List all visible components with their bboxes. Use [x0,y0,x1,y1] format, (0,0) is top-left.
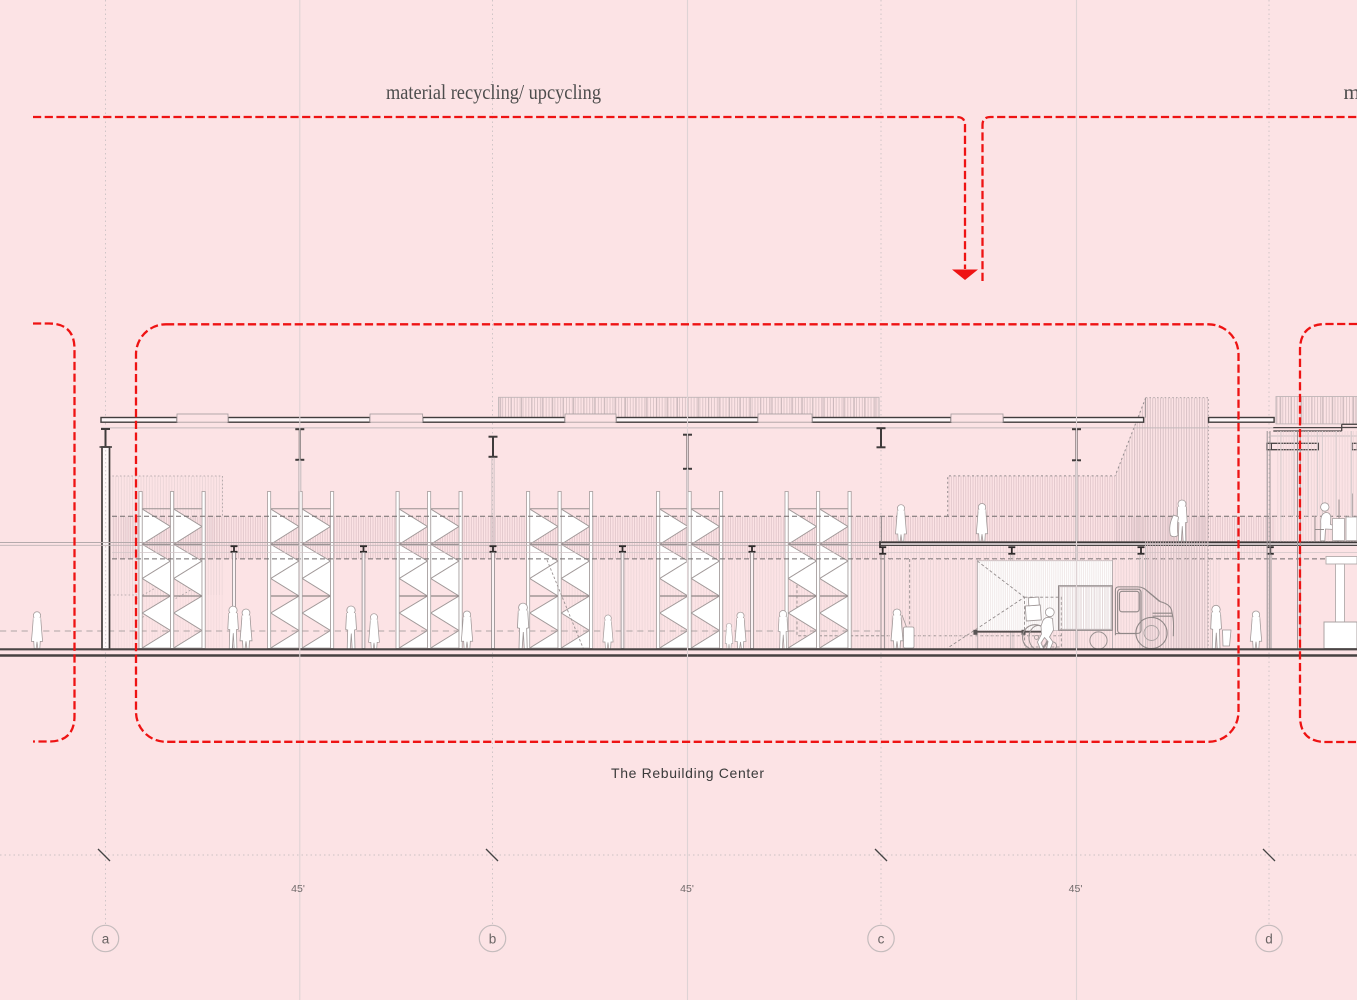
svg-text:c: c [878,932,885,947]
svg-text:d: d [1265,932,1273,947]
svg-text:45': 45' [680,883,694,895]
svg-text:b: b [489,932,497,947]
svg-text:material recycling/ upcycling: material recycling/ upcycling [386,80,601,104]
svg-text:a: a [102,932,110,947]
svg-text:45': 45' [1069,883,1083,895]
svg-text:materia: materia [1344,80,1357,104]
svg-text:The Rebuilding Center: The Rebuilding Center [611,765,764,781]
svg-text:45': 45' [291,883,305,895]
